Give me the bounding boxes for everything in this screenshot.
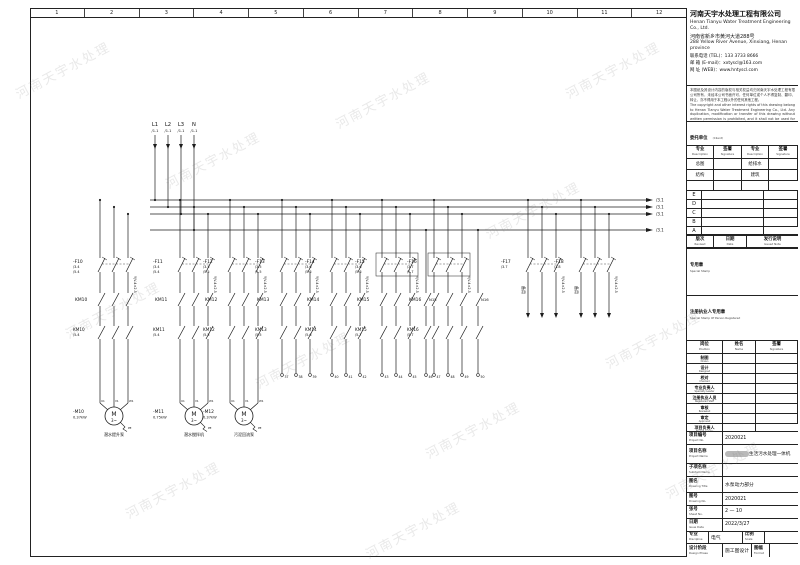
pe-label: PE xyxy=(128,426,132,430)
company-tel: 联系电话 (TEL)：133 3733 8666 xyxy=(690,54,795,61)
bus-ref-label: /3.1 xyxy=(656,205,664,210)
junction-dot xyxy=(359,213,361,215)
motor-tag: -M10 xyxy=(73,409,84,415)
aux-contact-N15: N1546 xyxy=(424,229,437,379)
motor-terminal-label: U1 xyxy=(101,399,105,403)
contact-tag: KM13 xyxy=(255,327,267,332)
motor-name: 污泥回流泵 xyxy=(234,431,254,437)
motor-terminal-label: V1 xyxy=(195,399,199,403)
junction-dot xyxy=(409,213,411,215)
breaker-pole xyxy=(394,258,401,272)
personnel-role-en: Approved xyxy=(699,421,710,424)
company-name-cn: 河南天宇水处理工程有限公司 xyxy=(690,10,795,19)
junction-dot xyxy=(527,199,529,201)
breaker-ref: /5.5 xyxy=(255,270,262,274)
spec-table-cell: 结构 xyxy=(687,170,714,181)
breaker-ref: /3.5 xyxy=(255,265,262,269)
contact-pole xyxy=(330,326,337,339)
breaker-pole xyxy=(460,258,467,272)
incoming-label: N xyxy=(192,122,196,128)
aux-pole xyxy=(476,326,483,339)
down-arrow xyxy=(607,313,611,318)
terminal-point xyxy=(345,374,348,377)
contact-pole xyxy=(380,326,387,339)
spec-table-cell xyxy=(714,170,742,181)
revision-letter: E xyxy=(687,191,702,200)
terminal-point xyxy=(477,374,480,377)
incoming-line-L3: L3/1.1 xyxy=(178,122,185,215)
terminal-number: 50 xyxy=(481,375,485,379)
contact-tag: KM11 xyxy=(153,327,165,332)
personnel-table: 岗位Position姓名Name签署Signature制图Drawn设计Desi… xyxy=(687,341,798,432)
terminal-43: 43 xyxy=(381,339,389,379)
issue-date-value: 2022/3/27 xyxy=(723,519,798,531)
breaker-pole xyxy=(540,258,547,272)
terminal-38: 38 xyxy=(295,339,303,379)
revision-empty-cell xyxy=(702,200,764,209)
sheet-no-row: 张号Sheet No. 2 — 10 xyxy=(687,506,798,519)
breaker-pole xyxy=(432,258,439,272)
motor-power: 0.37kW xyxy=(203,416,217,420)
incoming-label: L3 xyxy=(178,122,184,128)
contactor-KM10: KM10 xyxy=(75,272,133,326)
personnel-role-cell: 校对Checked xyxy=(687,374,723,384)
down-arrow xyxy=(166,144,170,149)
terminal-point xyxy=(281,374,284,377)
motor-lead xyxy=(250,403,258,410)
contact-pole xyxy=(192,326,199,339)
motor-lead xyxy=(200,403,208,410)
breaker-pole xyxy=(126,258,133,272)
junction-dot xyxy=(447,206,449,208)
contact-ref: /5.7 xyxy=(407,333,414,337)
terminal-42: 42 xyxy=(359,339,367,379)
drawing-title-value: 水泵动力部分 xyxy=(723,477,798,493)
breaker-pole xyxy=(112,258,119,272)
company-email: 邮 箱 (E-mail)：xxtyscl@163.com xyxy=(690,61,795,68)
terminal-45: 45 xyxy=(409,339,417,379)
terminal-point xyxy=(425,374,428,377)
personnel-role-cell: 项目负责人Project Leader xyxy=(687,424,723,432)
breaker-pole xyxy=(330,258,337,272)
contact-ref: /5.7 xyxy=(355,333,362,337)
breaker-ref: /3.4 xyxy=(153,265,160,269)
terminal-point xyxy=(381,374,384,377)
breaker-pole xyxy=(178,258,185,272)
personnel-header-cell: 签署Signature xyxy=(756,341,798,354)
branch-F14: -F14/3.6/5.6YJV-4×2.5KM14KM14/5.6404142 xyxy=(305,199,369,379)
terminal-point xyxy=(433,374,436,377)
specialty-signature-table: 专业Description签署Signature专业Description签署S… xyxy=(687,146,798,191)
contact-pole xyxy=(242,326,249,339)
contactor-tag: KM13 xyxy=(257,297,269,303)
motor-lead xyxy=(230,403,238,410)
personnel-name-cell xyxy=(723,414,756,424)
revision-empty-cell xyxy=(702,218,764,227)
breaker-pole xyxy=(344,258,351,272)
contact-pole xyxy=(98,326,105,339)
discipline-scale-row: 专业Discipline 电气 比例Scale xyxy=(687,532,798,545)
personnel-role-cell: 设计Designed xyxy=(687,364,723,374)
personnel-role-en: Checked xyxy=(699,381,709,384)
personnel-signature-cell xyxy=(756,354,798,364)
drawing-no-row: 图号Drawing No. 2020021 xyxy=(687,493,798,506)
aux-tag: N16 xyxy=(481,297,489,302)
revision-header-cell: 发行说明Issued Note xyxy=(747,236,798,248)
bus-line-4: /3.1 xyxy=(150,228,664,233)
personnel-role-en: Specialty Leader xyxy=(695,391,715,394)
aux-pole xyxy=(424,326,431,339)
motor-phase-symbol: 3~ xyxy=(111,418,117,423)
breaker-ref: /3.7 xyxy=(407,265,414,269)
motor-terminal-label: W1 xyxy=(209,399,214,403)
subitem-value xyxy=(723,464,798,476)
breaker-ref: /5.4 xyxy=(73,270,80,274)
subitem-row: 子项名称Subitem Name xyxy=(687,464,798,477)
contactor-pole xyxy=(380,293,387,306)
project-name-suffix: 生活污水处理一体机 xyxy=(749,451,790,457)
breaker-F16: -F16/3.7/5.7 xyxy=(407,253,470,276)
contactor-pole xyxy=(460,293,467,306)
revision-header-cell: 版次Revised xyxy=(687,236,714,248)
contact-tag: KM12 xyxy=(203,327,215,332)
contact-row-KM12: KM12/5.5 xyxy=(203,326,263,339)
terminal-point xyxy=(309,374,312,377)
revision-header-en: Issued Note xyxy=(764,243,781,246)
spec-table-cell xyxy=(714,181,742,191)
sheet-no-label-en: Sheet No. xyxy=(689,513,720,516)
junction-dot xyxy=(580,199,582,201)
terminal-number: 47 xyxy=(437,375,441,379)
junction-dot xyxy=(381,199,383,201)
junction-dot xyxy=(555,213,557,215)
spec-header-en: Description xyxy=(747,153,763,156)
spec-table-header: 专业Description xyxy=(687,146,714,159)
personnel-name-cell xyxy=(723,384,756,394)
down-arrow xyxy=(579,313,583,318)
cable-spec-label: YJV-4×2.5 xyxy=(315,276,319,293)
personnel-role-cell: 注册执业人员Registered Staff xyxy=(687,394,723,404)
bus-line-1: /3.1 xyxy=(150,198,664,203)
contactor-pole xyxy=(178,293,185,306)
contact-pole xyxy=(344,326,351,339)
terminal-point xyxy=(409,374,412,377)
personnel-role-en: Project Leader xyxy=(696,431,713,433)
spec-cell-text: 总图 xyxy=(696,161,705,167)
registered-stamp-label: 注册执业人专用章 xyxy=(690,310,725,315)
incoming-ref: /1.1 xyxy=(191,129,198,133)
motor-pe-lead xyxy=(121,423,128,432)
terminal-number: 45 xyxy=(413,375,417,379)
issue-date-row: 日期Issue Date 2022/3/27 xyxy=(687,519,798,532)
junction-dot xyxy=(331,199,333,201)
breaker-pole xyxy=(294,258,301,272)
phase-format-row: 设计阶段Design Phase 施工图设计 图幅Format xyxy=(687,544,798,557)
special-stamp-box: 专用章 Special Stamp xyxy=(687,249,798,296)
down-arrow xyxy=(192,144,196,149)
spec-header-en: Description xyxy=(692,153,708,156)
spec-table-header: 签署Signature xyxy=(769,146,798,159)
terminal-48: 48 xyxy=(447,339,455,379)
contactor-tag: KM14 xyxy=(307,297,319,303)
motor-M12: U1V1W1M3~PE-M120.37kW污泥回流泵 xyxy=(203,339,264,437)
contact-pole xyxy=(432,326,439,339)
motor-m-symbol: M xyxy=(241,411,246,418)
personnel-role-cell: 制图Drawn xyxy=(687,354,723,364)
spec-header-en: Signature xyxy=(776,153,790,156)
cable-spec-label: YJV-4×2.5 xyxy=(365,276,369,293)
spec-cell-text: 结构 xyxy=(696,172,705,178)
spare-feeder: 备用 xyxy=(574,272,611,318)
personnel-role-en: Drawn xyxy=(701,361,709,364)
contactor-pole xyxy=(98,293,105,306)
spec-table-cell xyxy=(769,170,798,181)
breaker-ref: /3.6 xyxy=(355,265,362,269)
contact-tag: KM15 xyxy=(355,327,367,332)
down-arrow xyxy=(554,313,558,318)
personnel-signature-cell xyxy=(756,414,798,424)
contactor-pole xyxy=(394,293,401,306)
sheet-no-value: 2 — 10 xyxy=(723,506,798,518)
breaker-pole xyxy=(607,258,614,272)
motor-terminal-label: U1 xyxy=(181,399,185,403)
contact-pole xyxy=(394,326,401,339)
terminal-number: 48 xyxy=(451,375,455,379)
drawing-title-label-en: Drawing Title xyxy=(689,485,720,488)
motor-terminal-label: V1 xyxy=(245,399,249,403)
breaker-F10: -F10/3.4/5.4 xyxy=(73,257,135,274)
terminal-37: 37 xyxy=(281,339,289,379)
contact-pole xyxy=(228,326,235,339)
incoming-ref: /1.1 xyxy=(165,129,172,133)
contactor-pole xyxy=(330,293,337,306)
breaker-ref: /5.6 xyxy=(305,270,312,274)
copyright-en: The copyright and other interest rights … xyxy=(690,103,795,122)
personnel-header-en: Signature xyxy=(770,348,784,351)
junction-dot xyxy=(608,213,610,215)
spec-table-cell: 给排水 xyxy=(742,159,769,170)
motor-m-symbol: M xyxy=(191,411,196,418)
drawing-title-row: 图名Drawing Title 水泵动力部分 xyxy=(687,477,798,494)
bus-arrow xyxy=(646,212,653,216)
revision-letter: C xyxy=(687,209,702,218)
motor-tag: -M11 xyxy=(153,409,164,415)
personnel-role-cell: 审定Approved xyxy=(687,414,723,424)
terminal-point xyxy=(447,374,450,377)
cable-spec-label: YJV-4×2.5 xyxy=(561,276,565,293)
personnel-signature-cell xyxy=(756,384,798,394)
cable-spec-label: YJV-4×2.5 xyxy=(415,276,419,293)
incoming-line-L1: L1/1.1 xyxy=(152,122,159,201)
motor-pe-lead xyxy=(251,423,258,432)
motor-lead xyxy=(100,403,108,410)
motor-terminal-label: W1 xyxy=(259,399,264,403)
contact-tag: KM14 xyxy=(305,327,317,332)
copyright-notice: 本图纸及其设计内容的版权与相关权益均归河南天宇水处理工程有限公司所有，未经本公司… xyxy=(687,86,798,121)
personnel-header-en: Name xyxy=(735,348,743,351)
client-label: 委托单位 xyxy=(690,136,708,141)
motor-terminal-label: V1 xyxy=(115,399,119,403)
breaker-pole xyxy=(380,258,387,272)
discipline-value: 电气 xyxy=(709,532,743,544)
down-arrow xyxy=(179,144,183,149)
branch-F17: -F17/3.7YJV-4×2.5备用 xyxy=(501,199,565,318)
drawing-no-label-en: Drawing No. xyxy=(689,500,720,503)
format-label-en: Format xyxy=(754,552,767,555)
personnel-signature-cell xyxy=(756,374,798,384)
junction-dot xyxy=(113,206,115,208)
copyright-cn: 本图纸及其设计内容的版权与相关权益均归河南天宇水处理工程有限公司所有，未经本公司… xyxy=(690,88,795,102)
terminal-number: 41 xyxy=(349,375,353,379)
pe-label: PE xyxy=(208,426,212,430)
registered-stamp-box: 注册执业人专用章 Special Stamp Of Person Registe… xyxy=(687,296,798,341)
terminal-number: 39 xyxy=(313,375,317,379)
bus-arrow xyxy=(646,228,653,232)
redacted-project-prefix xyxy=(725,451,749,457)
breaker-pole xyxy=(526,258,533,272)
revision-empty-cell xyxy=(764,227,798,236)
contact-pole xyxy=(460,326,467,339)
contact-tag: KM16 xyxy=(407,327,419,332)
junction-dot xyxy=(594,206,596,208)
contactor-pole xyxy=(280,293,287,306)
personnel-name-cell xyxy=(723,354,756,364)
incoming-line-L2: L2/1.1 xyxy=(165,122,172,208)
revision-header-en: Date xyxy=(727,243,734,246)
spec-table-cell: 建筑 xyxy=(742,170,769,181)
terminal-40: 40 xyxy=(331,339,339,379)
motor-lead xyxy=(120,403,128,410)
breaker-pole xyxy=(98,258,105,272)
revision-letter: A xyxy=(687,227,702,236)
spec-header-en: Signature xyxy=(721,153,735,156)
personnel-signature-cell xyxy=(756,364,798,374)
down-arrow xyxy=(153,144,157,149)
aux-contact-N16: N1650 xyxy=(476,229,489,379)
contactor-pole xyxy=(344,293,351,306)
breaker-F18: -F18/3.8 xyxy=(554,257,616,272)
breaker-ref: /5.5 xyxy=(203,270,210,274)
scale-label-en: Scale xyxy=(745,538,762,541)
registered-stamp-label-en: Special Stamp Of Person Registered xyxy=(690,317,795,320)
contactor-pole xyxy=(294,293,301,306)
junction-dot xyxy=(207,213,209,215)
contact-row-KM10: KM10/5.4 xyxy=(73,326,133,339)
cable-spec-label: YJV-4×2.5 xyxy=(133,276,137,293)
revision-header-cell: 日期Date xyxy=(714,236,747,248)
incoming-ref: /1.1 xyxy=(178,129,185,133)
motor-terminal-label: U1 xyxy=(231,399,235,403)
terminal-number: 42 xyxy=(363,375,367,379)
contactor-pole xyxy=(126,293,133,306)
special-stamp-label: 专用章 xyxy=(690,263,703,268)
contactor-pole xyxy=(446,293,453,306)
breaker-ref: /3.8 xyxy=(554,265,561,269)
spare-label: 备用 xyxy=(521,286,527,294)
breaker-ref: /5.4 xyxy=(153,270,160,274)
motor-phase-symbol: 3~ xyxy=(191,418,197,423)
personnel-role-en: Registered Staff xyxy=(695,401,714,404)
breaker-pole xyxy=(192,258,199,272)
junction-dot xyxy=(127,213,129,215)
contactor-tag: KM16 xyxy=(409,297,421,303)
power-distribution-schematic: L1/1.1L2/1.1L3/1.1N/1.1/3.1/3.1/3.1/3.1-… xyxy=(30,18,686,557)
revision-empty-cell xyxy=(764,218,798,227)
spec-table-header: 专业Description xyxy=(742,146,769,159)
terminal-44: 44 xyxy=(395,339,403,379)
contactor-pole xyxy=(228,293,235,306)
breaker-pole xyxy=(446,258,453,272)
branch-F10: -F10/3.4/5.4YJV-4×2.5KM10KM10/5.4U1V1W1M… xyxy=(73,199,137,437)
issue-date-label-en: Issue Date xyxy=(689,526,720,529)
motor-m-symbol: M xyxy=(111,411,116,418)
personnel-role-cell: 审核Reviewed xyxy=(687,404,723,414)
breaker-pole xyxy=(593,258,600,272)
bus-line-3: /3.1 xyxy=(150,212,664,217)
incoming-label: L2 xyxy=(165,122,171,128)
spare-label: 备用 xyxy=(574,286,580,294)
project-name-row: 项目名称Project Name 生活污水处理一体机 xyxy=(687,445,798,464)
contact-pole xyxy=(126,326,133,339)
bus-arrow xyxy=(646,205,653,209)
client-label-en: (Client) xyxy=(713,136,723,140)
revision-letter-rows: EDCBA xyxy=(687,191,798,236)
branch-F18: -F18/3.8YJV-4×2.5备用 xyxy=(554,199,618,318)
branch-F11: -F11/3.4/5.4YJV-4×2.5KM11KM11/5.4U1V1W1M… xyxy=(153,199,217,437)
phase-value: 施工图设计 xyxy=(723,544,752,557)
terminal-point xyxy=(461,374,464,377)
spec-table-cell xyxy=(687,181,714,191)
personnel-role-en: Designed xyxy=(699,371,710,374)
junction-dot xyxy=(257,213,259,215)
contact-ref: /5.5 xyxy=(255,333,262,337)
breaker-ref: /3.5 xyxy=(203,265,210,269)
title-block: 河南天宇水处理工程有限公司 Henan Tianyu Water Treatme… xyxy=(686,8,798,557)
bus-ref-label: /3.1 xyxy=(656,212,664,217)
spec-table-cell xyxy=(742,181,769,191)
personnel-role-en: Reviewed xyxy=(699,411,711,414)
personnel-signature-cell xyxy=(756,424,798,432)
spec-cell-text: 建筑 xyxy=(751,172,760,178)
revision-empty-cell xyxy=(702,227,764,236)
terminal-number: 37 xyxy=(285,375,289,379)
format-value xyxy=(770,544,798,557)
contactor-pole xyxy=(192,293,199,306)
motor-power: 0.75kW xyxy=(153,416,167,420)
pe-label: PE xyxy=(258,426,262,430)
personnel-signature-cell xyxy=(756,394,798,404)
down-arrow xyxy=(593,313,597,318)
spare-feeder: 备用 xyxy=(521,272,558,318)
revision-header-en: Revised xyxy=(695,243,706,246)
contact-row-KM16: KM16/5.7 xyxy=(407,326,467,339)
contact-pole xyxy=(178,326,185,339)
terminal-number: 43 xyxy=(385,375,389,379)
contact-ref: /5.5 xyxy=(203,333,210,337)
bus-ref-label: /3.1 xyxy=(656,228,664,233)
scale-value xyxy=(765,532,798,544)
down-arrow xyxy=(540,313,544,318)
incoming-ref: /1.1 xyxy=(152,129,159,133)
terminal-number: 40 xyxy=(335,375,339,379)
personnel-name-cell xyxy=(723,374,756,384)
drawing-sheet: { "watermark": "河南天宇水处理", "ruler": { "nu… xyxy=(0,0,800,565)
cable-spec-label: YJV-4×2.5 xyxy=(263,276,267,293)
motor-name: 潜水提升泵 xyxy=(104,431,124,437)
contactor-pole xyxy=(242,293,249,306)
revision-letter: B xyxy=(687,218,702,227)
breaker-pole xyxy=(280,258,287,272)
